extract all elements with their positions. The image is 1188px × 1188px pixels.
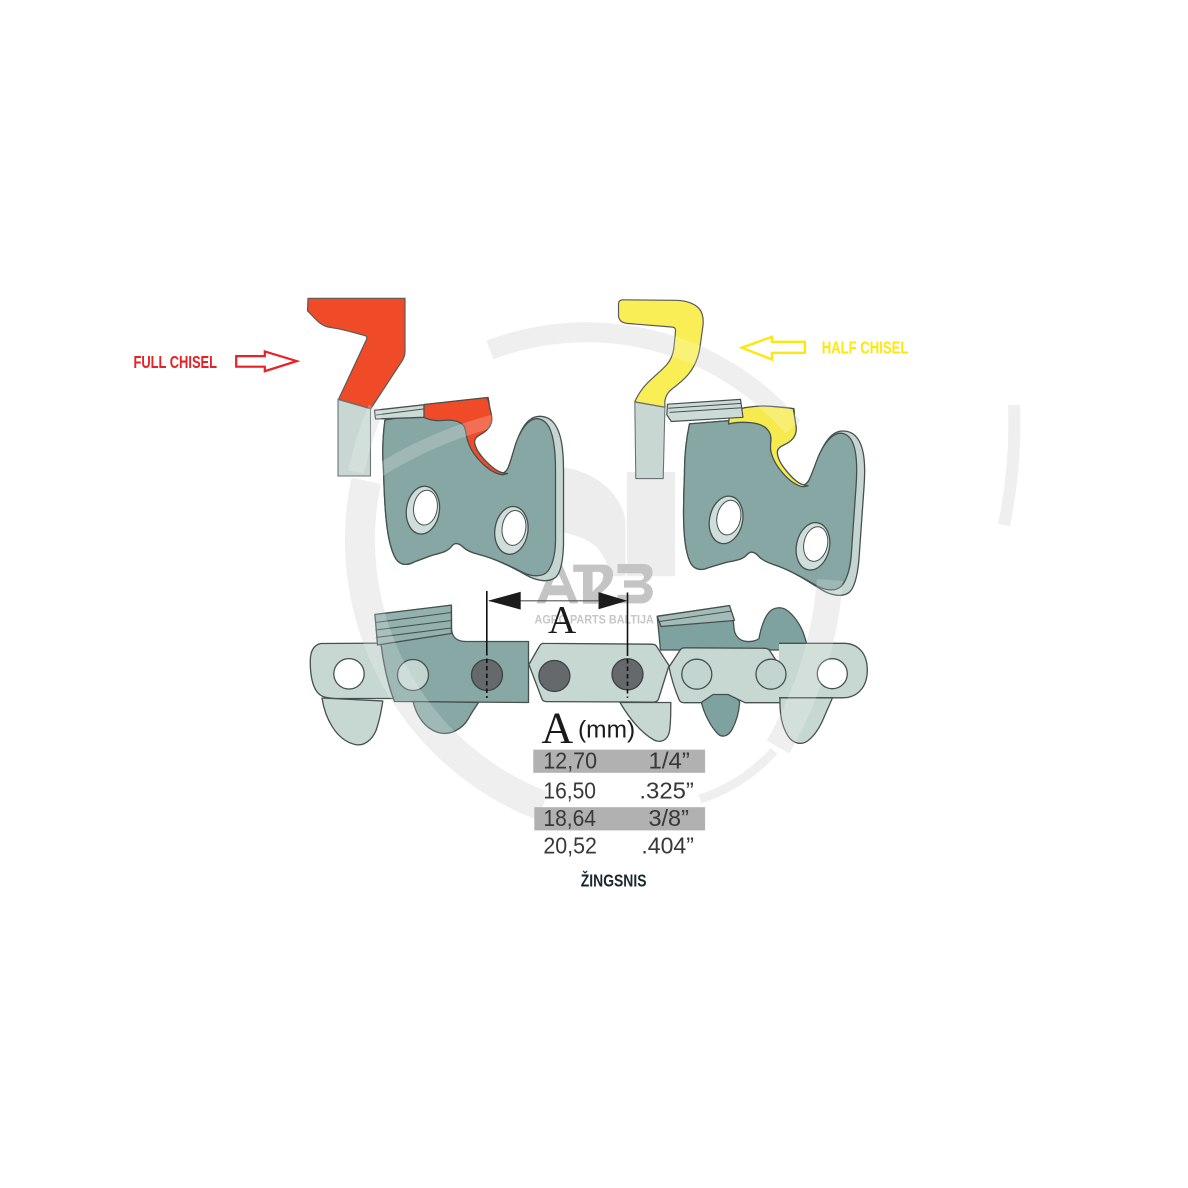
svg-text:20,52: 20,52 (543, 833, 597, 859)
svg-text:3/8”: 3/8” (649, 805, 689, 831)
svg-text:FULL CHISEL: FULL CHISEL (134, 352, 218, 372)
svg-text:(mm): (mm) (578, 717, 635, 744)
svg-text:A: A (548, 599, 576, 642)
svg-text:18,64: 18,64 (543, 805, 596, 831)
svg-text:HALF CHISEL: HALF CHISEL (822, 338, 909, 358)
svg-text:16,50: 16,50 (543, 778, 596, 804)
svg-text:1/4”: 1/4” (649, 748, 690, 774)
svg-text:ŽINGSNIS: ŽINGSNIS (581, 870, 647, 891)
svg-text:A: A (541, 704, 573, 753)
svg-text:12,70: 12,70 (543, 748, 597, 774)
svg-text:.404”: .404” (641, 833, 694, 859)
svg-text:.325”: .325” (639, 778, 694, 804)
